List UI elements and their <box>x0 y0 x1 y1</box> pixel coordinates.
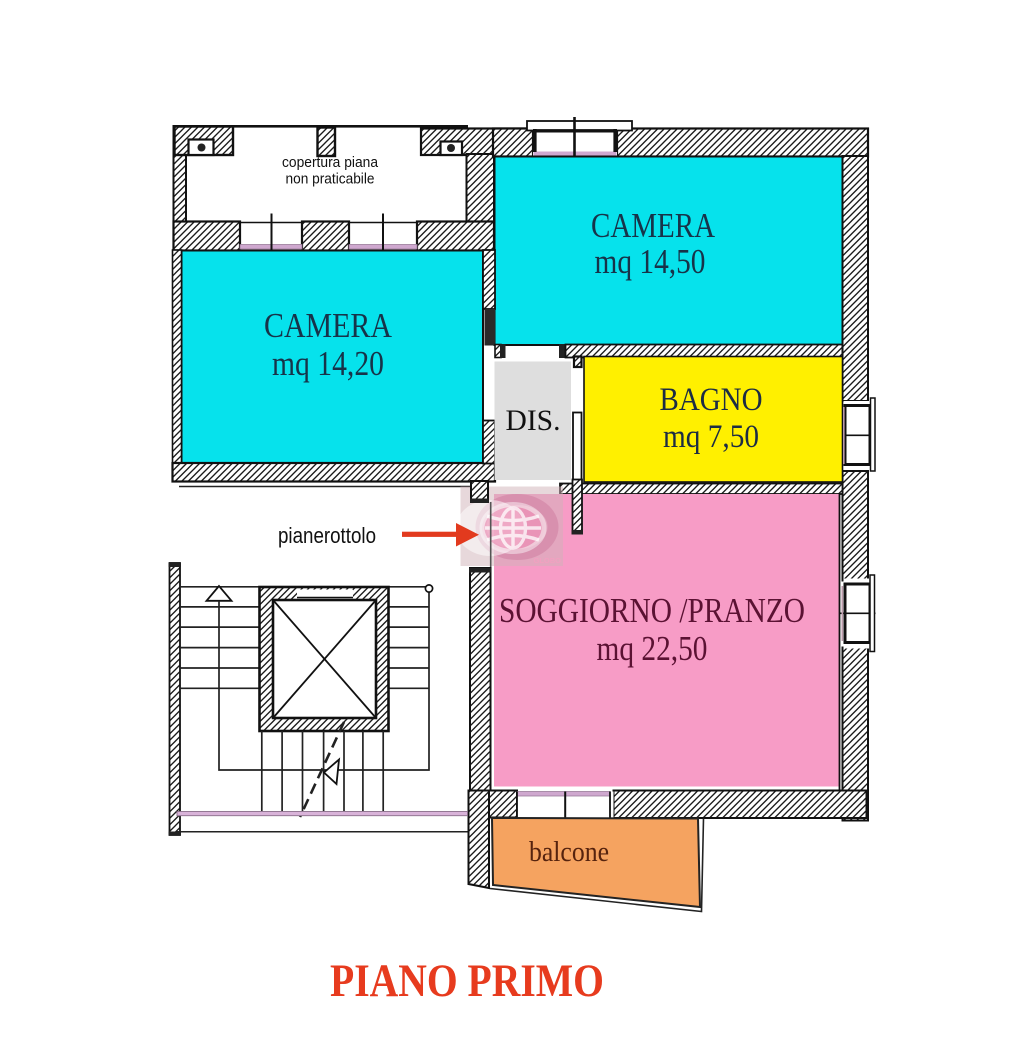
svg-text:DIS.: DIS. <box>506 404 561 437</box>
svg-text:BAGNO: BAGNO <box>660 382 763 418</box>
svg-text:CAMERA: CAMERA <box>591 206 716 245</box>
svg-text:PIANO PRIMO: PIANO PRIMO <box>330 955 604 1007</box>
svg-text:mq 14,50: mq 14,50 <box>595 242 706 281</box>
svg-text:GLOBO: GLOBO <box>534 556 562 565</box>
svg-text:copertura piana: copertura piana <box>282 155 379 171</box>
svg-text:non praticabile: non praticabile <box>286 172 375 188</box>
svg-text:CAMERA: CAMERA <box>264 306 393 345</box>
svg-text:SOGGIORNO /PRANZO: SOGGIORNO /PRANZO <box>499 591 805 630</box>
svg-text:balcone: balcone <box>529 837 609 868</box>
svg-text:mq 22,50: mq 22,50 <box>597 629 708 668</box>
svg-text:mq 14,20: mq 14,20 <box>272 344 384 383</box>
svg-text:mq 7,50: mq 7,50 <box>663 419 759 455</box>
svg-text:pianerottolo: pianerottolo <box>278 523 376 548</box>
